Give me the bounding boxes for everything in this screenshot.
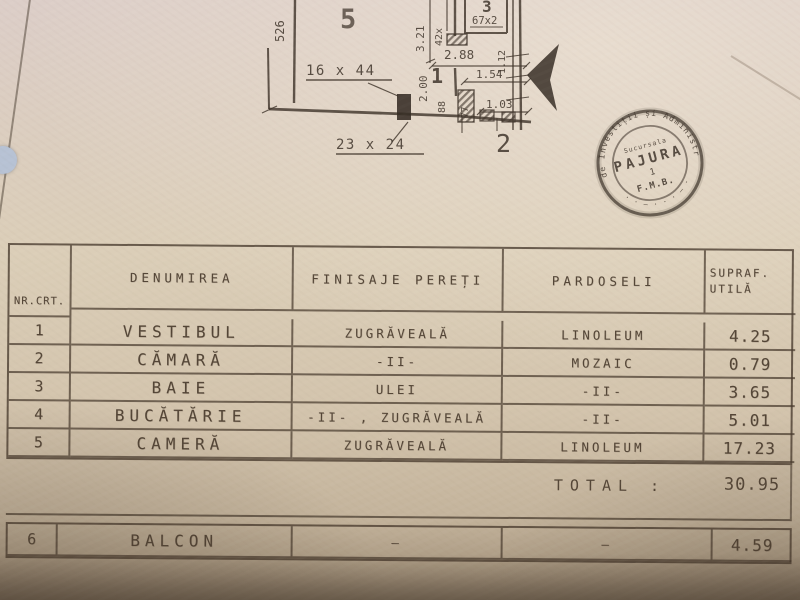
- dim-2-00: 2.00: [417, 76, 430, 103]
- floor-plan-sketch: 5 3 1 2 526 3.21 42x 67x2 2.88 2.00 88 1…: [0, 0, 800, 240]
- window-note-23x24: 23 x 24: [336, 137, 406, 153]
- room-label-5: 5: [340, 4, 356, 35]
- room-label-1: 1: [431, 64, 443, 88]
- stamp-ring-text-bottom: · · – · · · – · ·: [0, 0, 699, 240]
- dim-3-21: 3.21: [414, 26, 427, 53]
- total-value: 30.95: [724, 475, 780, 495]
- table-cell-floor: LINOLEUM: [503, 321, 705, 351]
- paper-edge-shadow: [0, 554, 800, 600]
- table-cell-floor: -II-: [503, 377, 705, 407]
- table-cell-floor: MOZAIC: [503, 349, 705, 379]
- table-cell-nr: 3: [9, 373, 71, 401]
- table-cell-area: 5.01: [705, 406, 795, 435]
- total-label: TOTAL :: [554, 476, 666, 495]
- table-cell-area: 4.25: [705, 322, 795, 351]
- table-cell-nr: 2: [9, 345, 71, 373]
- table-cell-nr: 1: [9, 317, 71, 345]
- table-cell-name: BAIE: [71, 373, 293, 403]
- column-header-name: DENUMIREA: [71, 246, 293, 312]
- table-cell-floor: -II-: [503, 405, 705, 435]
- north-arrow-icon: [527, 44, 559, 111]
- column-header-floor: PARDOSELI: [503, 249, 705, 315]
- dim-67x2: 67x2: [472, 15, 497, 27]
- table-grid: NR.CRT. DENUMIREA FINISAJE PEREȚI PARDOS…: [6, 243, 794, 465]
- dim-42: 42x: [434, 28, 445, 46]
- svg-text:de Investiții și Administrație: de Investiții și Administrație: [0, 0, 702, 240]
- room-surfaces-table: NR.CRT. DENUMIREA FINISAJE PEREȚI PARDOS…: [6, 243, 794, 564]
- dim-88: 88: [437, 101, 448, 113]
- window-note-16x44: 16 x 44: [306, 63, 376, 79]
- table-cell-name: VESTIBUL: [71, 318, 293, 348]
- table-cell-name: BUCĂTĂRIE: [71, 401, 293, 431]
- dim-1-12: 1.12: [497, 50, 508, 74]
- table-cell-area: 0.79: [705, 350, 795, 379]
- room-label-2: 2: [496, 129, 511, 158]
- table-cell-area: 17.23: [704, 434, 794, 463]
- column-header-nr: NR.CRT.: [9, 245, 72, 317]
- table-cell-floor: LINOLEUM: [502, 433, 704, 463]
- table-cell-walls: -II- , ZUGRĂVEALĂ: [293, 403, 503, 433]
- table-cell-nr: 4: [9, 401, 71, 429]
- stamp-center-number: 1: [649, 167, 657, 178]
- total-band: TOTAL : 30.95: [6, 459, 792, 521]
- dim-77: 77: [460, 107, 471, 118]
- table-cell-name: CĂMARĂ: [71, 345, 293, 375]
- table-cell-nr: 6: [8, 524, 58, 556]
- column-header-walls: FINISAJE PEREȚI: [293, 247, 503, 313]
- room-label-3: 3: [482, 0, 492, 16]
- table-cell-walls: -II-: [293, 347, 503, 377]
- table-cell-area: 3.65: [705, 378, 795, 407]
- dim-1-03: 1.03: [486, 98, 513, 111]
- table-cell-walls: ULEI: [293, 375, 503, 405]
- dim-2-88: 2.88: [444, 47, 474, 62]
- dim-526: 526: [273, 20, 287, 42]
- table-cell-walls: ZUGRĂVEALĂ: [293, 319, 503, 349]
- table-cell-name: CAMERĂ: [70, 429, 292, 459]
- column-header-area: SUPRAF. UTILĂ: [705, 250, 795, 315]
- round-stamp: de Investiții și Administrație · · – · ·…: [0, 0, 714, 240]
- table-cell-nr: 5: [8, 429, 70, 457]
- svg-text:· · – · · · – · ·: · · – · · · – · ·: [0, 0, 699, 240]
- stamp-ring-text: de Investiții și Administrație: [0, 0, 702, 240]
- stamp-center-org: F.M.B.: [636, 175, 676, 195]
- scanned-document: 5 3 1 2 526 3.21 42x 67x2 2.88 2.00 88 1…: [0, 0, 800, 600]
- table-cell-walls: ZUGRĂVEALĂ: [292, 431, 502, 461]
